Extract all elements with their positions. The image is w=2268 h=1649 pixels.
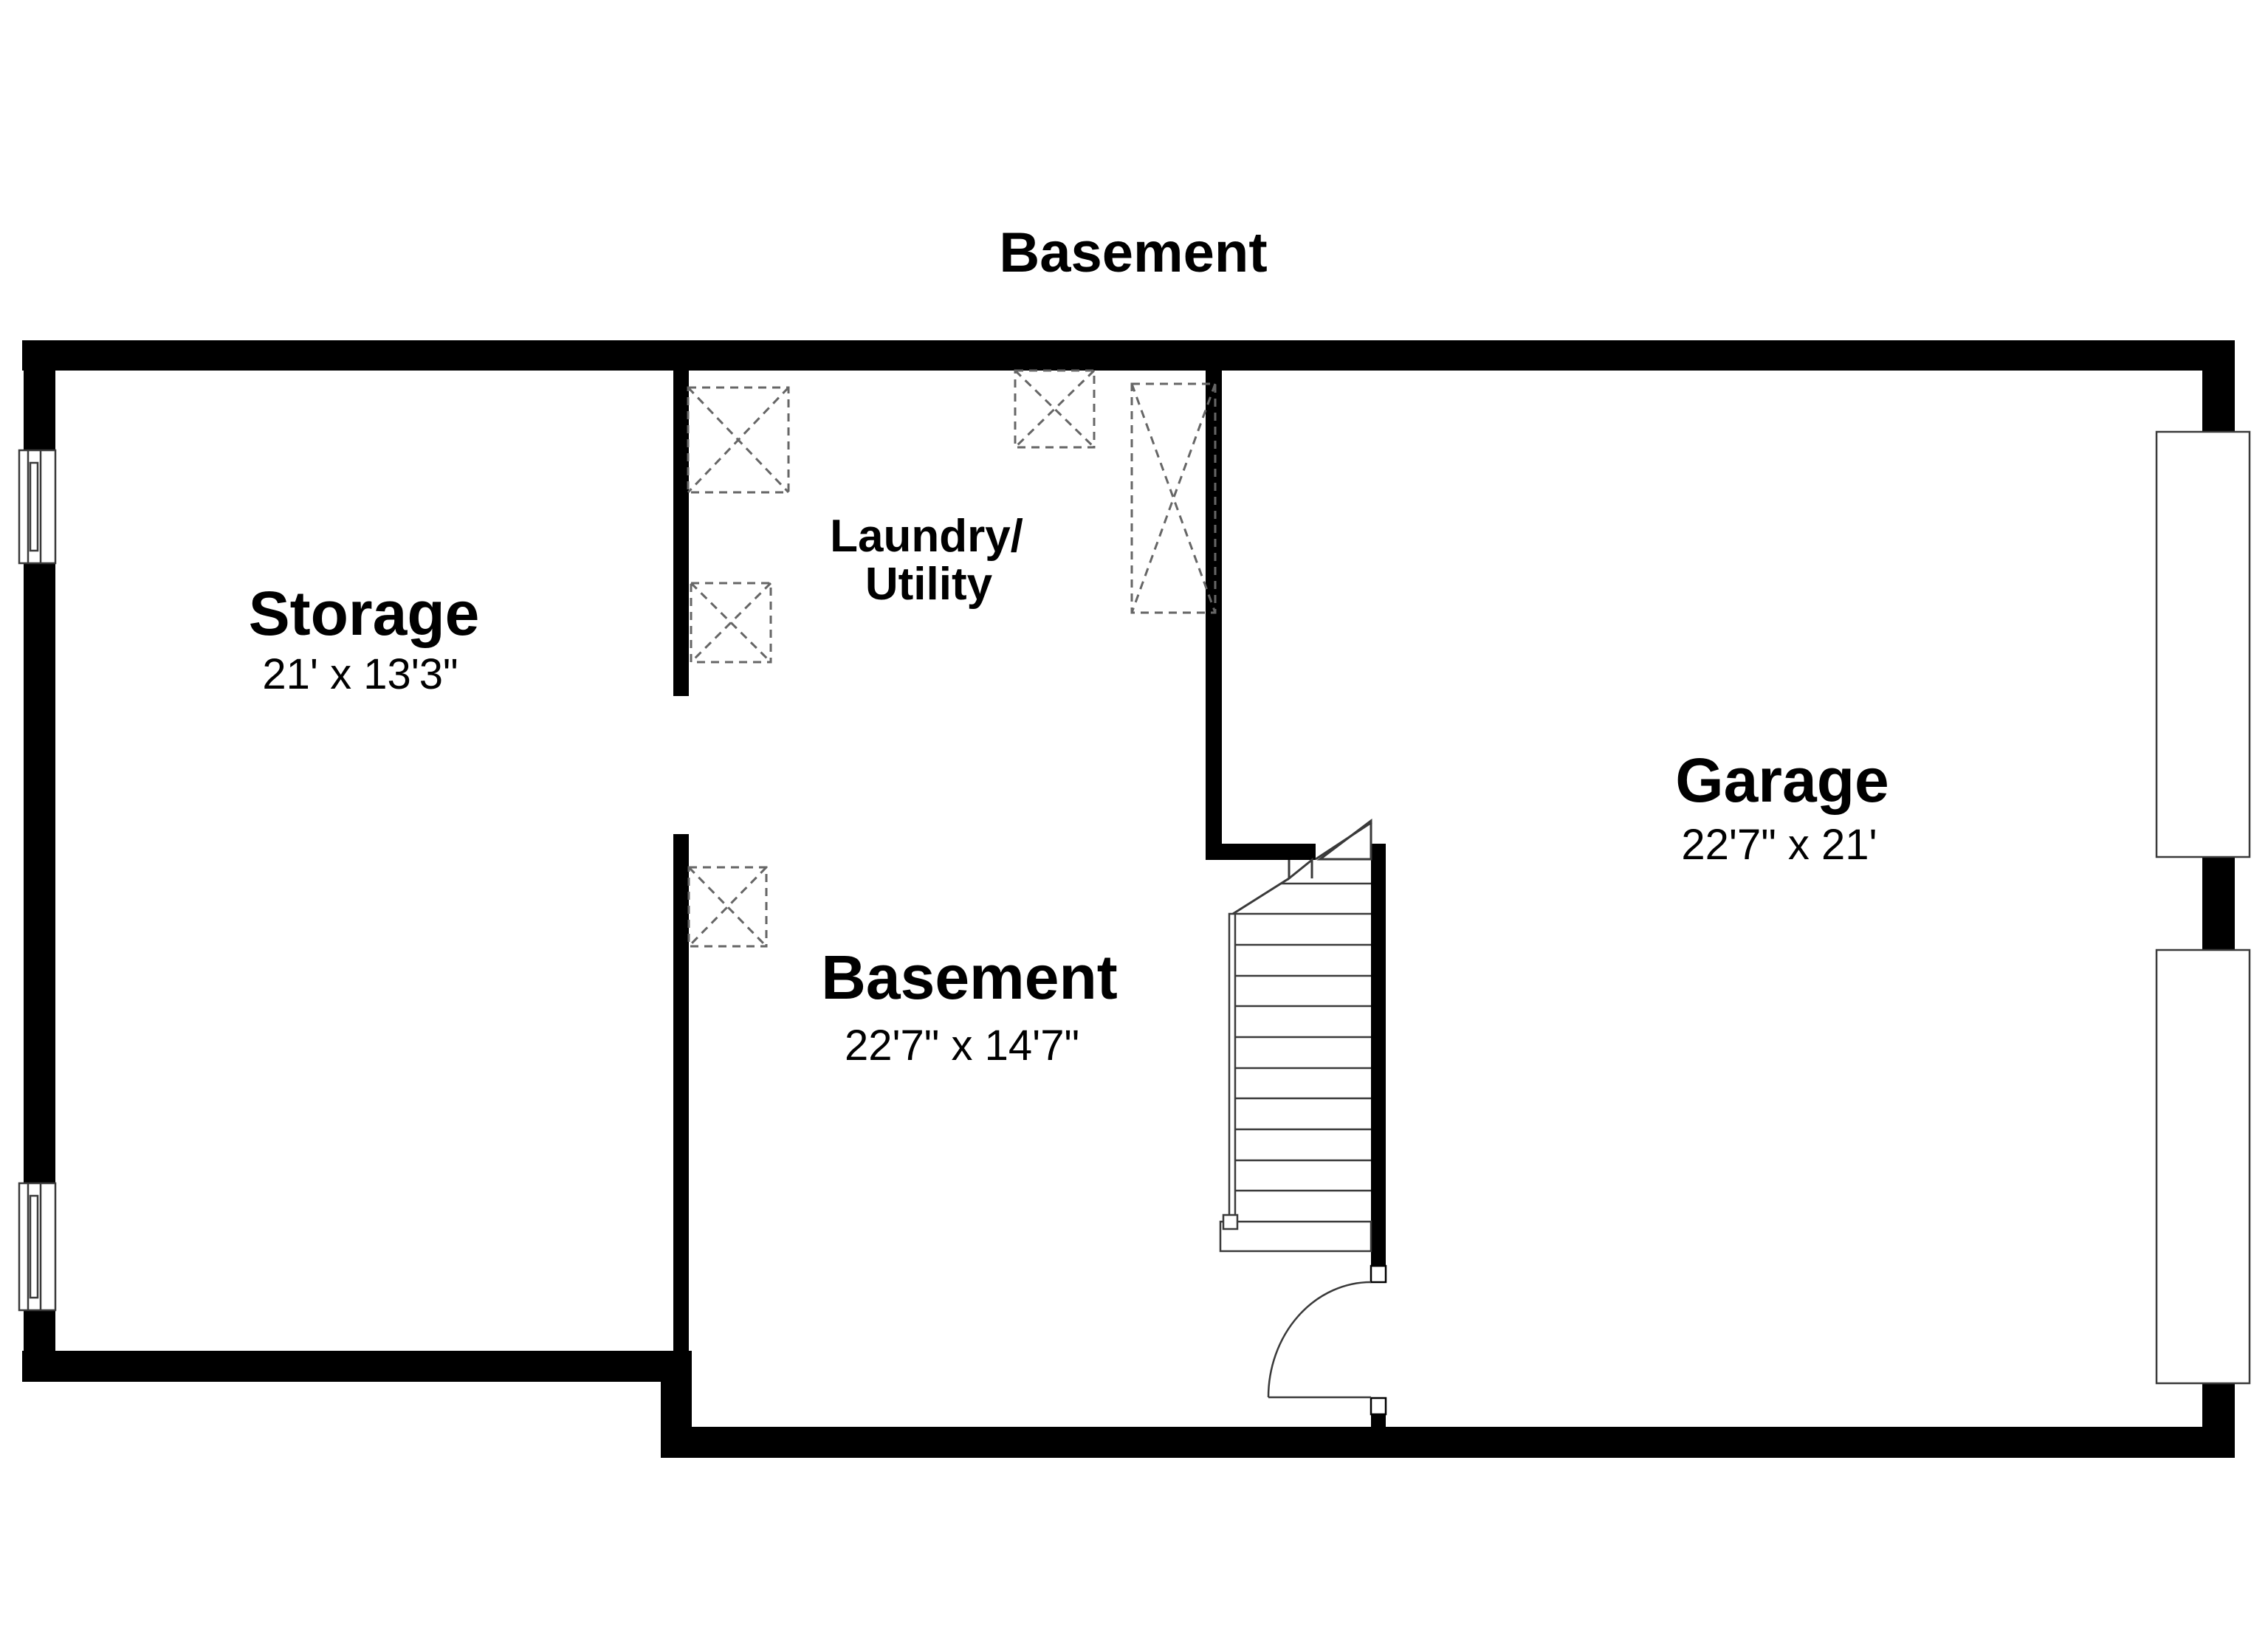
window-icon (19, 1183, 55, 1310)
window-icon (19, 450, 55, 563)
window-sash (30, 463, 38, 551)
wall-top (22, 340, 2235, 371)
stair-handrail (1229, 914, 1235, 1216)
storage-room-area (55, 371, 673, 1351)
wall-stair-right (1371, 844, 1386, 1266)
page-title: Basement (999, 221, 1267, 284)
door-jamb (1371, 1398, 1386, 1414)
wall-door-stub (1371, 1414, 1386, 1432)
stair-landing (1220, 1222, 1371, 1251)
storage-room-label: Storage (249, 579, 480, 648)
basement-room-dims: 22'7" x 14'7" (845, 1022, 1079, 1070)
door-jamb (1371, 1266, 1386, 1282)
window-sash (30, 1196, 38, 1298)
wall-stair-top (1222, 844, 1316, 860)
wall-left-middle (24, 563, 55, 1183)
storage-room-dims: 21' x 13'3" (262, 650, 458, 698)
garage-door-opening-icon (2157, 950, 2250, 1383)
garage-room-label: Garage (1675, 746, 1889, 815)
wall-storage-divider-lower (673, 834, 689, 1351)
garage-room-dims: 22'7" x 21' (1681, 821, 1877, 869)
wall-right-upper (2202, 340, 2235, 432)
wall-left-upper (24, 340, 55, 450)
room-areas (55, 371, 2202, 1427)
laundry-room-label-line1: Laundry/ (830, 511, 1023, 562)
wall-right-middle (2202, 857, 2235, 950)
stair-newel-post (1223, 1215, 1237, 1229)
laundry-room-label-line2: Utility (865, 559, 993, 610)
wall-garage-divider (1206, 371, 1222, 860)
basement-room-label: Basement (821, 943, 1118, 1012)
floor-plan-page: Basement Storage 21' x 13'3" Laundry/ Ut… (0, 0, 2268, 1649)
garage-door-opening-icon (2157, 432, 2250, 857)
wall-bottom-main (661, 1427, 2235, 1458)
basement-floor-plan: Basement Storage 21' x 13'3" Laundry/ Ut… (0, 0, 2268, 1649)
wall-bottom-storage (22, 1351, 692, 1382)
garage-area (1386, 371, 2202, 1427)
wall-storage-divider-upper (673, 371, 689, 696)
